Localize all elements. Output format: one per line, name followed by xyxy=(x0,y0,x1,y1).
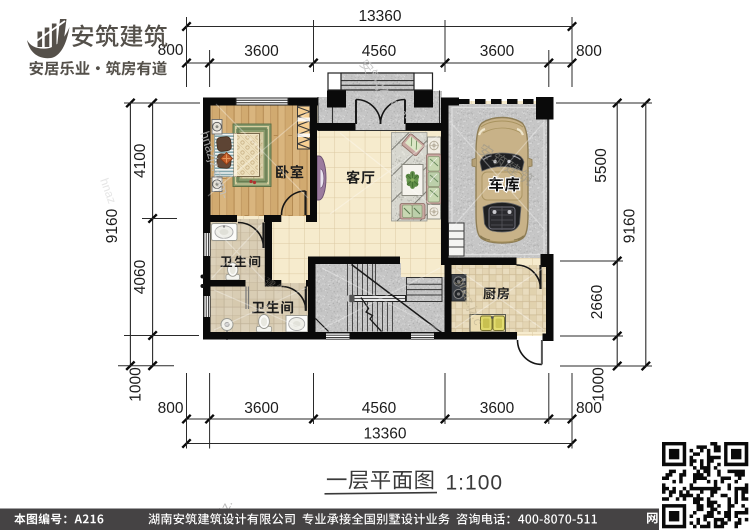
svg-text:800: 800 xyxy=(576,43,602,60)
svg-text:1000: 1000 xyxy=(128,367,145,402)
svg-text:4560: 4560 xyxy=(362,43,397,60)
svg-text:1000: 1000 xyxy=(591,367,608,402)
svg-text:3600: 3600 xyxy=(244,400,279,417)
svg-text:4060: 4060 xyxy=(132,259,149,294)
svg-text:5500: 5500 xyxy=(593,148,610,183)
svg-text:4100: 4100 xyxy=(132,143,149,178)
svg-text:1:100: 1:100 xyxy=(446,472,504,495)
svg-text:800: 800 xyxy=(158,400,184,417)
svg-text:800: 800 xyxy=(158,42,184,59)
svg-text:3600: 3600 xyxy=(480,43,515,60)
svg-text:9160: 9160 xyxy=(104,208,121,243)
svg-text:4560: 4560 xyxy=(362,400,397,417)
svg-text:2660: 2660 xyxy=(589,284,606,319)
svg-text:9160: 9160 xyxy=(622,208,639,243)
svg-text:3600: 3600 xyxy=(480,400,515,417)
svg-text:13360: 13360 xyxy=(358,8,401,25)
svg-text:3600: 3600 xyxy=(244,43,279,60)
svg-text:13360: 13360 xyxy=(363,426,406,443)
